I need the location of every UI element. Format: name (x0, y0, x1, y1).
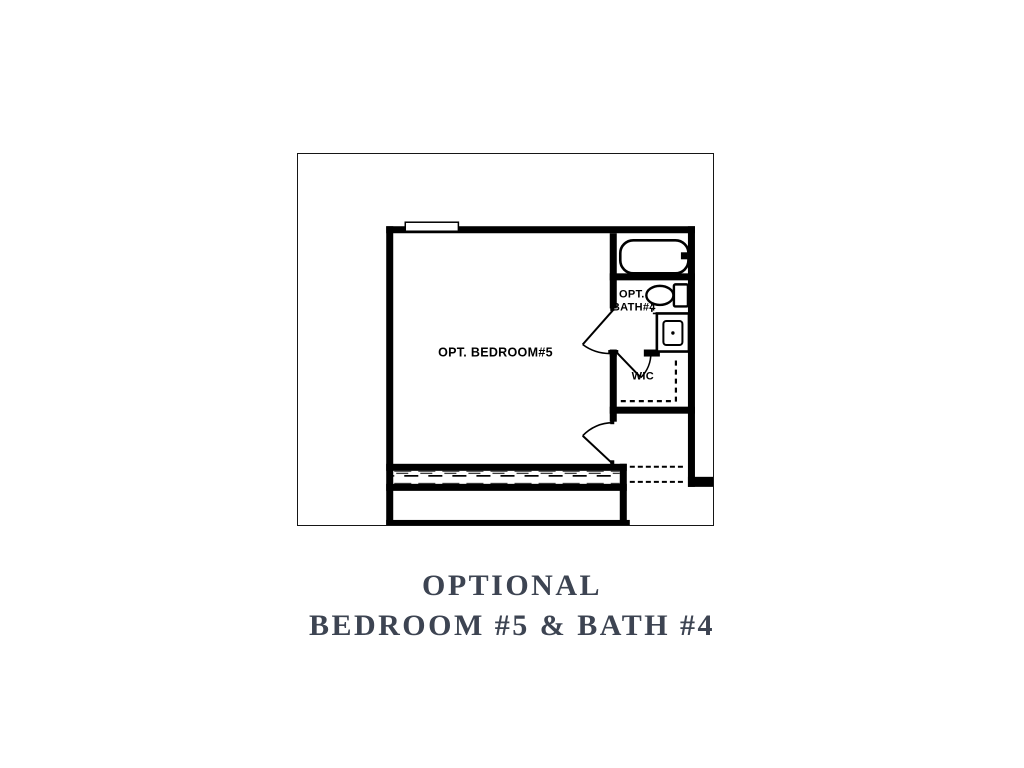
doors (583, 307, 653, 464)
wall-right-bottom-horizontal (688, 477, 713, 487)
room-label-bath-line2: BATH#4 (612, 301, 656, 313)
wall-divider-upper (610, 233, 617, 308)
wall-bottom-strip (386, 520, 630, 525)
bedroom-door-swing (583, 420, 615, 464)
hatched-wall-band (393, 471, 620, 484)
room-label-closet: WIC (632, 371, 654, 383)
wall-bottom-right-vertical (620, 464, 627, 525)
hall-dashed-lines (630, 467, 686, 482)
figure-caption: OPTIONAL BEDROOM #5 & BATH #4 (0, 566, 1024, 646)
room-label-bedroom: OPT. BEDROOM#5 (438, 346, 553, 360)
wall-right (688, 226, 695, 487)
wall-bedroom-bottom (386, 464, 627, 471)
wall-wic-bottom (610, 407, 695, 414)
sink-drain (671, 331, 674, 334)
tub-faucet-icon (681, 252, 688, 259)
bathtub (620, 240, 688, 273)
wall-left (386, 226, 393, 525)
bath-door-swing (583, 307, 615, 354)
wall-band-bottom (386, 484, 627, 491)
floor-plan-drawing: OPT. BEDROOM#5 OPT. BATH#4 WIC (298, 154, 713, 525)
toilet-tank (674, 284, 688, 306)
room-labels: OPT. BEDROOM#5 OPT. BATH#4 WIC (438, 288, 656, 382)
room-label-bath-line1: OPT. (619, 288, 645, 300)
window-marker (405, 222, 458, 231)
page: OPT. BEDROOM#5 OPT. BATH#4 WIC OPTIONAL … (0, 0, 1024, 768)
caption-line-1: OPTIONAL (0, 566, 1024, 606)
caption-line-2: BEDROOM #5 & BATH #4 (0, 606, 1024, 646)
floor-plan-figure: OPT. BEDROOM#5 OPT. BATH#4 WIC (297, 153, 714, 526)
